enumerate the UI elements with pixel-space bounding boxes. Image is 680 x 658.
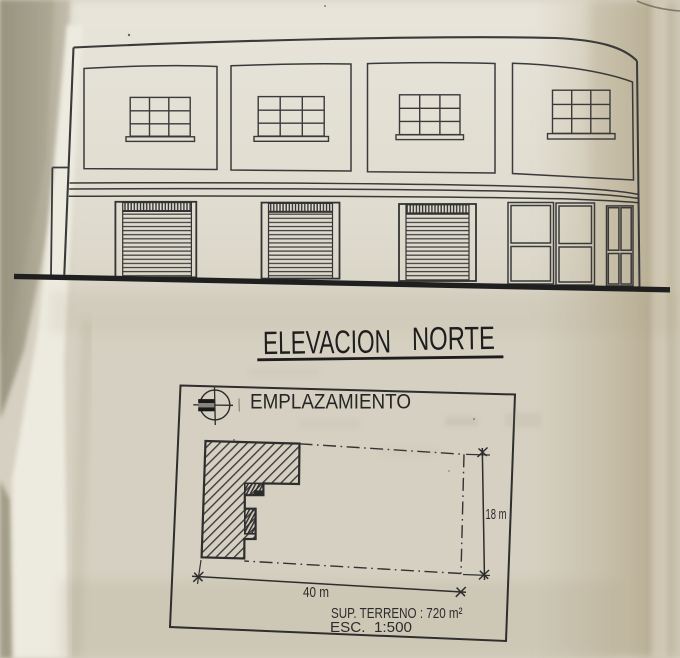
svg-text:18 m: 18 m <box>486 506 507 523</box>
svg-text:NORTE: NORTE <box>412 320 495 357</box>
svg-text:ELEVACION: ELEVACION <box>263 323 391 361</box>
svg-text:ESC. 1:500: ESC. 1:500 <box>330 620 412 636</box>
svg-text:40 m: 40 m <box>303 584 329 601</box>
svg-text:EMPLAZAMIENTO: EMPLAZAMIENTO <box>250 391 411 414</box>
